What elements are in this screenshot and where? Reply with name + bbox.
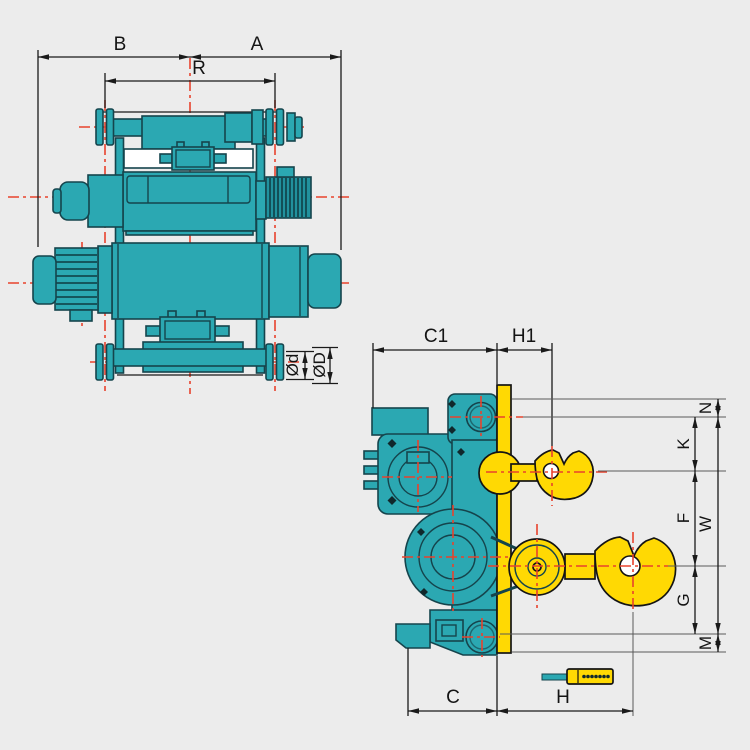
dim-label-m: M	[696, 636, 715, 650]
gearbox-shaft-housing	[88, 175, 123, 227]
front-view: B A R Ød ØD	[8, 34, 352, 394]
dim-label-w: W	[696, 516, 715, 532]
rope-drum	[112, 243, 341, 319]
trolley-wheel-bottom-right	[266, 344, 273, 380]
dim-label-b: B	[114, 34, 127, 55]
dim-label-c1: C1	[424, 326, 448, 347]
dim-label-h1: H1	[512, 326, 536, 347]
trolley-wheel-top-right	[266, 109, 273, 145]
rating-plate	[436, 620, 463, 641]
hoist-motor-finned	[33, 246, 112, 321]
dim-label-f: F	[674, 513, 693, 523]
trolley-wheel-bottom-left	[96, 344, 103, 380]
top-trolley-beam	[96, 109, 302, 149]
dim-label-k: K	[674, 438, 693, 450]
travel-drive-block	[225, 113, 252, 142]
upper-hook-eye	[544, 464, 559, 479]
hoist-gearbox	[53, 167, 311, 235]
trolley-wheel-top-left	[96, 109, 103, 145]
dim-label-wheel-flange-dia: ØD	[310, 352, 329, 378]
motor-end-cap	[33, 256, 56, 304]
dim-label-g: G	[674, 593, 693, 606]
suspension-plate	[497, 385, 511, 653]
dim-label-wheel-tread-dia: Ød	[283, 354, 302, 377]
dim-label-c: C	[446, 687, 460, 708]
dimension-stack-right: N K F W G M	[500, 399, 726, 652]
side-body-foot	[396, 624, 430, 648]
drawing-canvas: B A R Ød ØD	[0, 0, 750, 750]
dim-label-a: A	[251, 34, 264, 55]
pendant-control	[542, 669, 613, 684]
brake-motor-ribbed	[266, 177, 311, 218]
dimension-wheel-diameters: Ød ØD	[283, 348, 338, 384]
dim-label-n: N	[696, 402, 715, 414]
dim-label-h: H	[556, 687, 570, 708]
motor-terminal-box	[372, 408, 428, 435]
load-gear	[479, 385, 676, 653]
pendant-body	[567, 669, 613, 684]
side-view: C1 H1 C H	[364, 326, 726, 716]
dim-label-r: R	[192, 58, 206, 79]
pendant-cable	[542, 674, 568, 680]
hoist-dimension-drawing: B A R Ød ØD	[0, 0, 750, 750]
